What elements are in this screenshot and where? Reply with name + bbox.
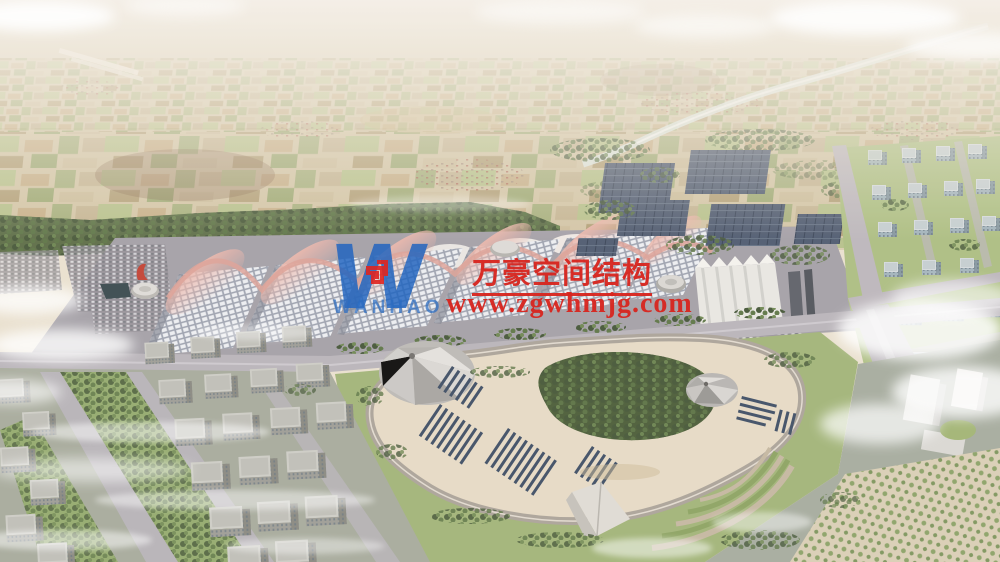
aerial-rendering: W WANHAO 万豪空间结构 www.zgwhmjg.com (0, 0, 1000, 562)
watermark-url: www.zgwhmjg.com (446, 288, 693, 320)
wanhao-logo-text: WANHAO (333, 297, 457, 319)
wanhao-logo-emblem-icon (362, 256, 396, 288)
